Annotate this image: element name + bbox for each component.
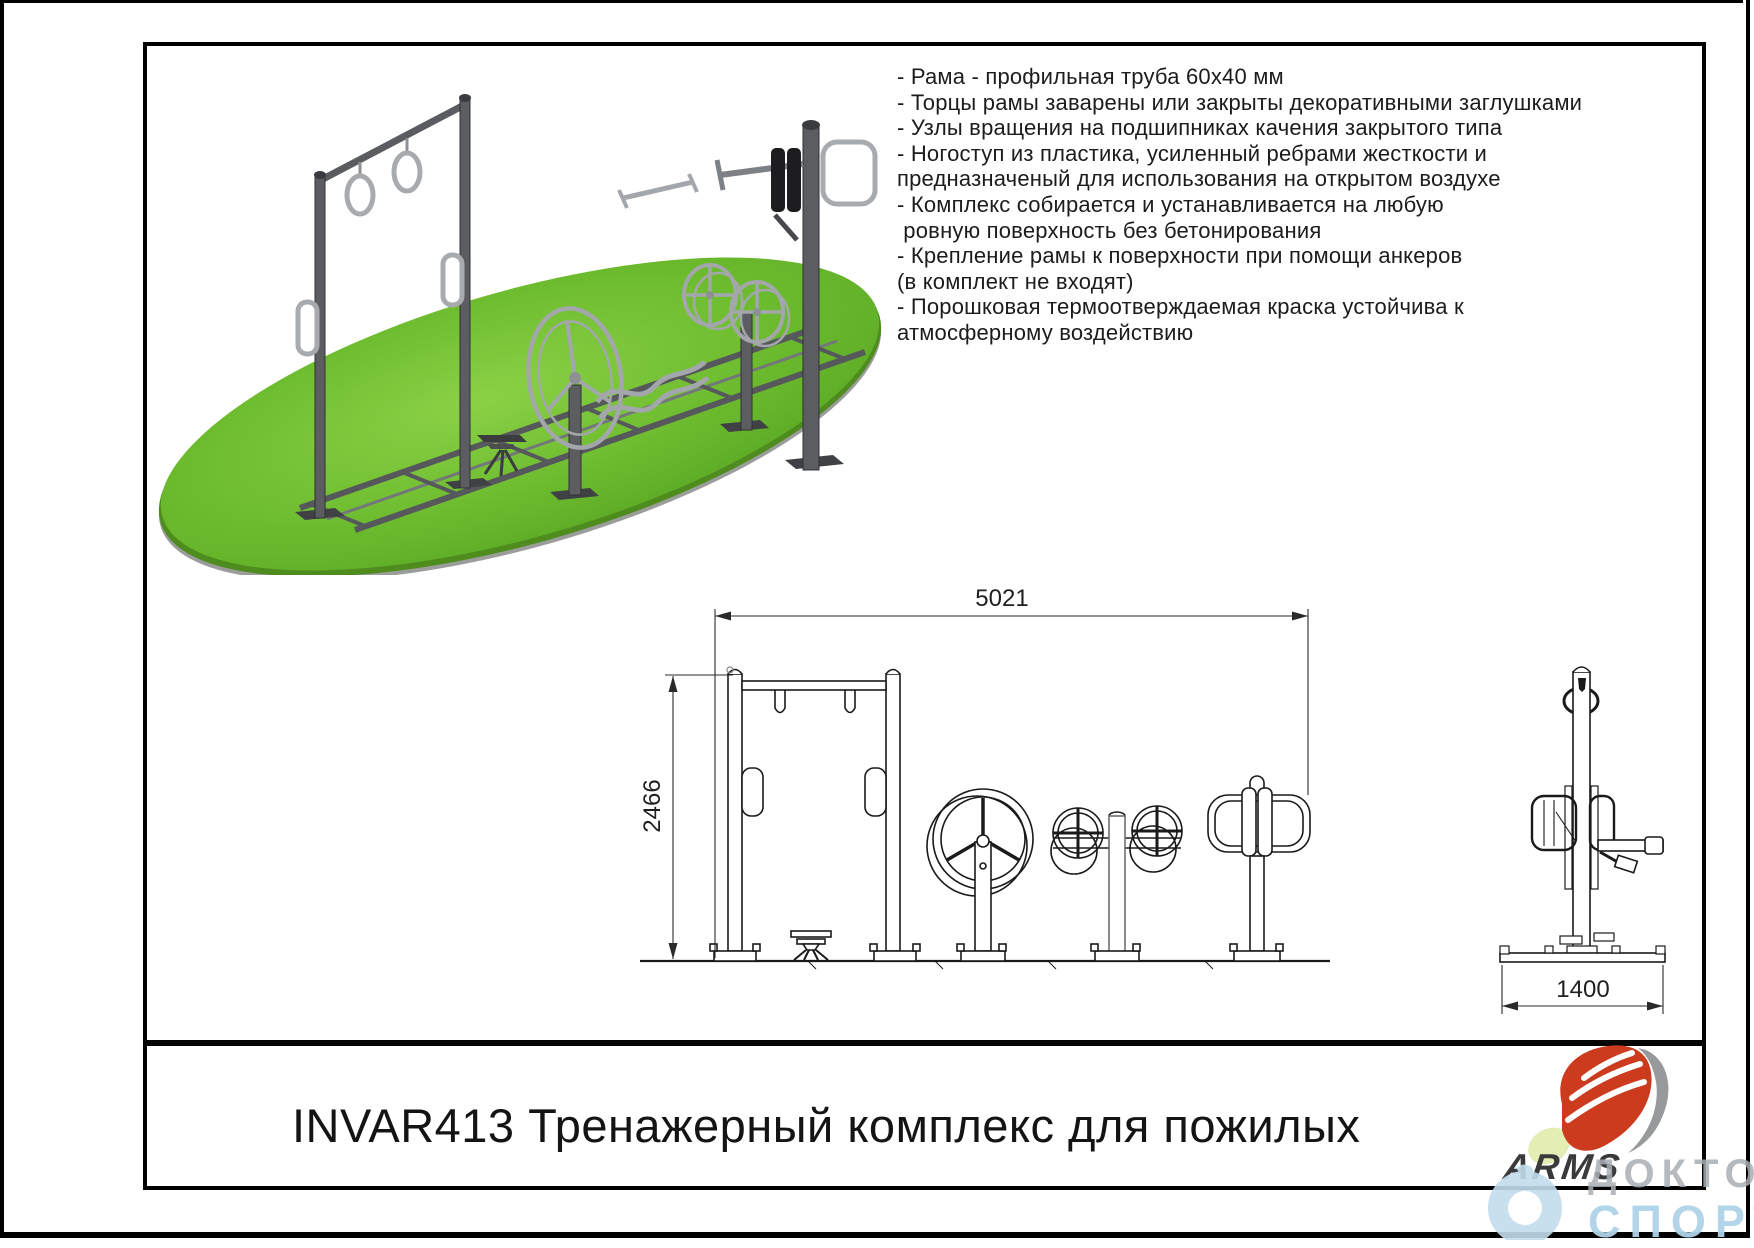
spec-line: предназначеный для использования на откр… [897,166,1557,192]
watermark-line2: СПОРТ [1588,1196,1754,1248]
dim-label-depth: 1400 [1556,976,1609,1003]
spec-line: - Комплекс собирается и устанавливается … [897,192,1557,218]
page-title: INVAR413 Тренажерный комплекс для пожилы… [292,1098,1360,1153]
outer-border-left [0,0,4,1237]
watermark-line1: ДОКТОР [1588,1152,1754,1197]
doctor-sport-ring-icon [1498,1164,1552,1235]
spec-line: - Порошковая термоотверждаемая краска ус… [897,294,1557,320]
side-view [1500,667,1665,962]
spec-line: - Узлы вращения на подшипниках качения з… [897,115,1557,141]
outer-border-top [0,0,1743,3]
dimension-width-5021 [715,609,1308,958]
spec-list: - Рама - профильная труба 60x40 мм - Тор… [897,64,1557,346]
spec-line: атмосферному воздействию [897,320,1557,346]
spec-line: - Торцы рамы заварены или закрыты декора… [897,90,1557,116]
dimension-height-2466 [665,675,733,959]
ground-line [640,961,1330,969]
arms-swoosh-icon [1560,1045,1668,1153]
front-view-big-wheel [927,789,1033,961]
front-view-twister [791,931,831,960]
watermark-mark [1480,1150,1600,1240]
drawing-sheet: { "title_block": { "title": "INVAR413 Тр… [0,0,1754,1240]
spec-line: - Ногоступ из пластика, усиленный ребрам… [897,141,1557,167]
front-view-pad-station [1208,776,1310,961]
spec-line: - Рама - профильная труба 60x40 мм [897,64,1557,90]
spec-line: - Крепление рамы к поверхности при помощ… [897,243,1557,269]
outer-border-right [1746,0,1750,1237]
front-view-hand-wheels [1051,806,1182,961]
dim-label-height: 2466 [639,779,666,832]
render-3d [145,50,890,575]
front-view-gate [710,667,920,961]
title-block-separator [143,1040,1706,1046]
spec-line: (в комплект не входят) [897,269,1557,295]
dim-label-width: 5021 [975,585,1028,612]
technical-drawings: 5021 2466 1400 [600,560,1725,1030]
spec-line: ровную поверхность без бетонирования [897,218,1557,244]
